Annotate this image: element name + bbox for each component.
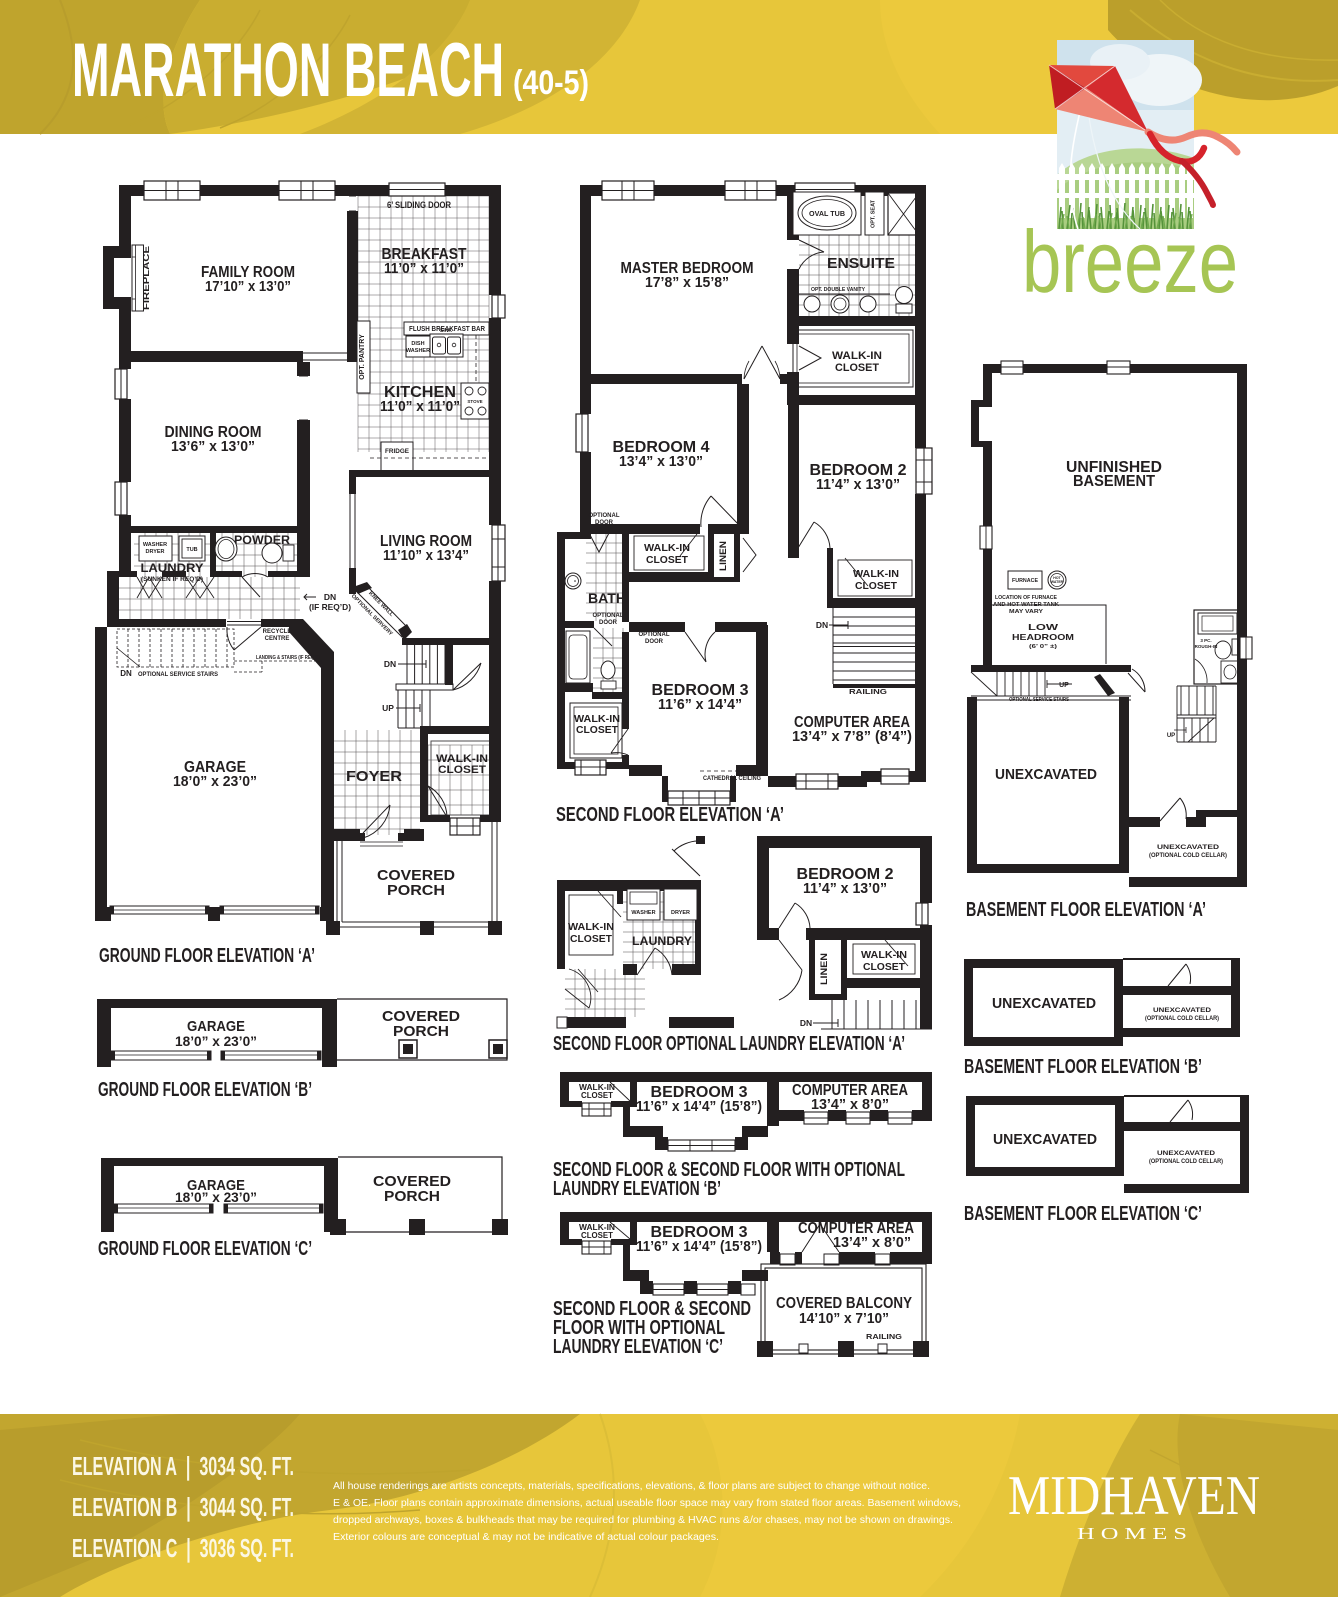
svg-text:DN: DN — [324, 592, 336, 602]
svg-text:RECYCLE: RECYCLE — [263, 629, 292, 635]
svg-text:WALK-IN: WALK-IN — [853, 568, 899, 580]
svg-text:OPTIONAL SERVICE STAIRS: OPTIONAL SERVICE STAIRS — [138, 671, 219, 678]
svg-text:MARATHON BEACH: MARATHON BEACH — [72, 28, 504, 113]
svg-text:11’6” x 14’4”: 11’6” x 14’4” — [658, 697, 742, 713]
svg-text:18’0” x 23’0”: 18’0” x 23’0” — [173, 774, 257, 790]
svg-text:(OPTIONAL COLD CELLAR): (OPTIONAL COLD CELLAR) — [1145, 1015, 1219, 1022]
svg-text:CLOSET: CLOSET — [646, 554, 689, 566]
svg-text:CATHEDRAL CEILING: CATHEDRAL CEILING — [703, 775, 761, 782]
svg-text:13’6” x 13’0”: 13’6” x 13’0” — [171, 439, 255, 455]
svg-text:ELEVATION C | 3036 SQ. FT.: ELEVATION C | 3036 SQ. FT. — [72, 1533, 294, 1563]
svg-text:OPT. PANTRY: OPT. PANTRY — [359, 334, 366, 380]
svg-text:13’4” x 7’8” (8’4”): 13’4” x 7’8” (8’4”) — [792, 729, 912, 745]
svg-text:WASHER: WASHER — [631, 910, 655, 916]
svg-text:UNEXCAVATED: UNEXCAVATED — [1153, 1007, 1211, 1014]
svg-text:11’0” x 11’0”: 11’0” x 11’0” — [380, 399, 460, 415]
svg-text:FURNACE: FURNACE — [1012, 578, 1038, 584]
svg-text:17’8” x 15’8”: 17’8” x 15’8” — [645, 275, 729, 291]
svg-text:WALK-IN: WALK-IN — [861, 949, 907, 961]
svg-text:OPTIONAL: OPTIONAL — [639, 632, 670, 638]
svg-text:UNEXCAVATED: UNEXCAVATED — [995, 766, 1097, 783]
svg-text:CLOSET: CLOSET — [835, 362, 879, 374]
svg-text:FRIDGE: FRIDGE — [385, 449, 409, 455]
svg-text:CLOSET: CLOSET — [576, 724, 619, 736]
svg-text:STOVE: STOVE — [467, 399, 482, 404]
svg-text:13’4” x 13’0”: 13’4” x 13’0” — [619, 454, 703, 470]
svg-text:ELEVATION A | 3034 SQ. FT.: ELEVATION A | 3034 SQ. FT. — [72, 1451, 294, 1481]
svg-text:OVAL TUB: OVAL TUB — [809, 209, 846, 218]
svg-text:PORCH: PORCH — [393, 1023, 449, 1040]
svg-text:COVERED BALCONY: COVERED BALCONY — [776, 1295, 912, 1312]
svg-text:FOYER: FOYER — [346, 768, 402, 785]
svg-text:OPTIONAL: OPTIONAL — [589, 513, 620, 519]
svg-text:11’10” x 13’4”: 11’10” x 13’4” — [383, 548, 469, 564]
svg-text:LINEN: LINEN — [718, 541, 728, 571]
svg-text:breeze: breeze — [1022, 212, 1238, 311]
svg-text:OPT. SEAT: OPT. SEAT — [871, 199, 877, 228]
svg-text:OPT. DOUBLE VANITY: OPT. DOUBLE VANITY — [811, 287, 865, 293]
svg-text:SINK: SINK — [440, 328, 452, 334]
svg-text:DN: DN — [120, 669, 132, 678]
svg-text:11’0” x 11’0”: 11’0” x 11’0” — [384, 261, 464, 277]
svg-text:FIREPLACE: FIREPLACE — [141, 246, 151, 310]
svg-text:11’6” x 14’4” (15’8”): 11’6” x 14’4” (15’8”) — [636, 1239, 762, 1255]
svg-text:POWDER: POWDER — [234, 533, 290, 547]
svg-text:11’4” x 13’0”: 11’4” x 13’0” — [803, 881, 887, 897]
svg-text:LAUNDRY: LAUNDRY — [632, 934, 692, 948]
svg-text:ENSUITE: ENSUITE — [827, 255, 895, 272]
svg-text:DOOR: DOOR — [595, 520, 614, 526]
svg-text:UP: UP — [1059, 682, 1069, 689]
svg-text:DOOR: DOOR — [645, 639, 664, 645]
svg-text:17’10” x 13’0”: 17’10” x 13’0” — [205, 279, 291, 295]
svg-text:DRYER: DRYER — [671, 910, 690, 916]
svg-text:PORCH: PORCH — [387, 882, 445, 899]
svg-text:(IF REQ’D): (IF REQ’D) — [309, 602, 351, 612]
svg-text:CLOSET: CLOSET — [438, 764, 486, 776]
svg-text:BASEMENT FLOOR ELEVATION ‘B’: BASEMENT FLOOR ELEVATION ‘B’ — [964, 1056, 1202, 1078]
svg-text:WASHER: WASHER — [406, 348, 430, 354]
svg-text:(40-5): (40-5) — [513, 64, 589, 102]
svg-text:11’4” x 13’0”: 11’4” x 13’0” — [816, 477, 900, 493]
svg-text:BASEMENT FLOOR ELEVATION ‘A’: BASEMENT FLOOR ELEVATION ‘A’ — [966, 899, 1206, 921]
svg-text:GROUND FLOOR ELEVATION ‘B’: GROUND FLOOR ELEVATION ‘B’ — [98, 1079, 312, 1101]
svg-text:BATH: BATH — [588, 591, 626, 606]
svg-text:3 PC.: 3 PC. — [1200, 638, 1211, 643]
svg-text:CLOSET: CLOSET — [581, 1091, 613, 1100]
svg-text:14’10” x 7’10”: 14’10” x 7’10” — [799, 1311, 889, 1327]
svg-text:WASHER: WASHER — [143, 542, 167, 548]
svg-text:LINEN: LINEN — [819, 953, 829, 985]
svg-text:BASEMENT FLOOR ELEVATION ‘C’: BASEMENT FLOOR ELEVATION ‘C’ — [964, 1203, 1202, 1225]
svg-text:18’0” x 23’0”: 18’0” x 23’0” — [175, 1189, 257, 1205]
svg-text:UNEXCAVATED: UNEXCAVATED — [993, 1131, 1097, 1148]
svg-text:DISH: DISH — [411, 341, 424, 347]
svg-text:13’4” x 8’0”: 13’4” x 8’0” — [833, 1235, 911, 1251]
svg-text:dropped archways, boxes & bulk: dropped archways, boxes & bulkheads that… — [333, 1515, 953, 1526]
svg-text:DOOR: DOOR — [599, 620, 618, 626]
svg-text:WALK-IN: WALK-IN — [832, 350, 882, 362]
svg-text:(OPTIONAL COLD CELLAR): (OPTIONAL COLD CELLAR) — [1149, 1158, 1223, 1165]
svg-text:GROUND FLOOR ELEVATION ‘A’: GROUND FLOOR ELEVATION ‘A’ — [99, 945, 315, 967]
svg-text:18’0” x 23’0”: 18’0” x 23’0” — [175, 1033, 257, 1049]
svg-text:GROUND FLOOR ELEVATION ‘C’: GROUND FLOOR ELEVATION ‘C’ — [98, 1238, 312, 1260]
svg-text:CLOSET: CLOSET — [863, 961, 906, 973]
svg-text:UP: UP — [1167, 733, 1175, 739]
svg-text:TUB: TUB — [186, 547, 197, 553]
svg-text:RAILING: RAILING — [866, 1334, 903, 1341]
svg-text:CLOSET: CLOSET — [855, 580, 898, 592]
svg-text:WATER: WATER — [1051, 580, 1064, 584]
svg-text:6’ SLIDING DOOR: 6’ SLIDING DOOR — [387, 200, 451, 210]
svg-text:UNEXCAVATED: UNEXCAVATED — [992, 995, 1096, 1012]
svg-text:ELEVATION B | 3044 SQ. FT.: ELEVATION B | 3044 SQ. FT. — [72, 1492, 294, 1522]
svg-text:All house renderings are artis: All house renderings are artists concept… — [333, 1481, 930, 1492]
svg-text:OPTIONAL: OPTIONAL — [593, 613, 624, 619]
svg-text:(6’ 0” ±): (6’ 0” ±) — [1029, 644, 1058, 650]
svg-text:CENTRE: CENTRE — [265, 636, 290, 642]
svg-text:H O M E S: H O M E S — [1077, 1524, 1187, 1543]
svg-text:MIDHAVEN: MIDHAVEN — [1008, 1465, 1260, 1527]
svg-text:CLOSET: CLOSET — [570, 933, 613, 945]
svg-text:OPTIONAL SERVICE STAIRS: OPTIONAL SERVICE STAIRS — [1009, 697, 1070, 703]
svg-text:DN: DN — [816, 620, 828, 630]
svg-text:LOCATION OF FURNACE: LOCATION OF FURNACE — [995, 595, 1057, 601]
svg-text:LAUNDRY ELEVATION ‘B’: LAUNDRY ELEVATION ‘B’ — [553, 1178, 721, 1200]
svg-text:WALK-IN: WALK-IN — [568, 921, 614, 933]
svg-text:CLOSET: CLOSET — [581, 1231, 613, 1240]
svg-text:RAILING: RAILING — [849, 689, 888, 696]
svg-text:Exterior colours are conceptua: Exterior colours are conceptual & may no… — [333, 1532, 719, 1543]
svg-text:UNEXCAVATED: UNEXCAVATED — [1157, 844, 1219, 851]
svg-text:BASEMENT: BASEMENT — [1073, 473, 1155, 490]
svg-text:HEADROOM: HEADROOM — [1012, 632, 1074, 642]
svg-text:UNEXCAVATED: UNEXCAVATED — [1157, 1150, 1215, 1157]
svg-text:DRYER: DRYER — [145, 549, 164, 555]
svg-text:LAUNDRY ELEVATION ‘C’: LAUNDRY ELEVATION ‘C’ — [553, 1336, 723, 1358]
svg-text:DN: DN — [800, 1018, 812, 1028]
svg-text:SECOND FLOOR ELEVATION ‘A’: SECOND FLOOR ELEVATION ‘A’ — [556, 804, 784, 826]
svg-text:PORCH: PORCH — [384, 1188, 440, 1205]
svg-text:DN: DN — [384, 659, 396, 669]
svg-text:ROUGH-IN: ROUGH-IN — [1195, 644, 1218, 649]
svg-text:LANDING & STAIRS (IF REQ’D): LANDING & STAIRS (IF REQ’D) — [256, 655, 320, 661]
svg-text:11’6” x 14’4” (15’8”): 11’6” x 14’4” (15’8”) — [636, 1099, 762, 1115]
svg-text:E & OE. Floor plans contain ap: E & OE. Floor plans contain approximate … — [333, 1498, 961, 1509]
svg-text:LOW: LOW — [1028, 622, 1059, 632]
svg-text:(OPTIONAL COLD CELLAR): (OPTIONAL COLD CELLAR) — [1149, 852, 1227, 859]
svg-text:UP: UP — [382, 703, 394, 713]
svg-text:MAY VARY: MAY VARY — [1009, 609, 1043, 615]
svg-text:SECOND FLOOR OPTIONAL LAUNDRY: SECOND FLOOR OPTIONAL LAUNDRY ELEVATION … — [553, 1033, 905, 1055]
